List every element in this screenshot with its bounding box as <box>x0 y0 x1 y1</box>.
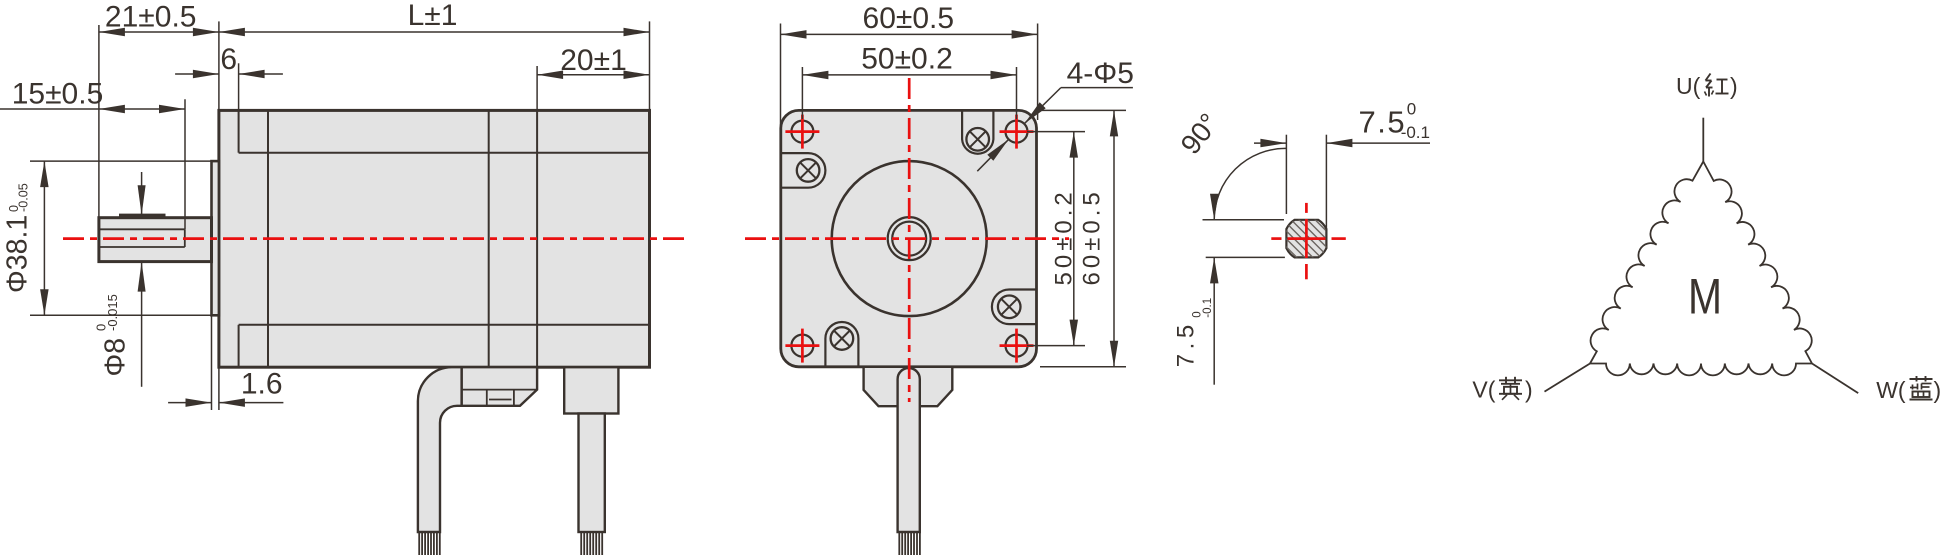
svg-text:20±1: 20±1 <box>560 44 627 77</box>
svg-text:50±0.2: 50±0.2 <box>1051 188 1078 285</box>
svg-text:): ) <box>1525 377 1533 403</box>
svg-text:V(: V( <box>1472 377 1495 403</box>
svg-text:L±1: L±1 <box>408 0 458 32</box>
svg-text:-0.015: -0.015 <box>105 294 120 331</box>
svg-text:M: M <box>1688 269 1722 325</box>
svg-text:60±0.5: 60±0.5 <box>863 2 955 35</box>
svg-text:-0.05: -0.05 <box>17 183 31 212</box>
svg-text:7.5: 7.5 <box>1173 320 1200 367</box>
svg-text:): ) <box>1934 377 1941 403</box>
svg-text:Φ38.1: Φ38.1 <box>2 215 34 293</box>
svg-text:-0.1: -0.1 <box>1202 298 1214 318</box>
svg-text:50±0.2: 50±0.2 <box>861 43 953 76</box>
svg-text:1.6: 1.6 <box>241 368 283 401</box>
svg-text:60±0.5: 60±0.5 <box>1079 188 1106 285</box>
svg-text:): ) <box>1730 73 1738 99</box>
svg-text:4-Φ5: 4-Φ5 <box>1067 57 1134 90</box>
svg-text:-0.1: -0.1 <box>1401 123 1430 142</box>
svg-text:90°: 90° <box>1175 108 1225 160</box>
svg-text:W(: W( <box>1876 377 1906 403</box>
svg-text:0: 0 <box>1407 99 1416 118</box>
svg-text:6: 6 <box>220 43 237 76</box>
svg-text:U(: U( <box>1676 73 1701 99</box>
svg-text:7.5: 7.5 <box>1359 105 1407 140</box>
svg-text:21±0.5: 21±0.5 <box>105 1 197 34</box>
svg-text:15±0.5: 15±0.5 <box>12 78 104 111</box>
svg-text:Φ8: Φ8 <box>100 338 132 377</box>
